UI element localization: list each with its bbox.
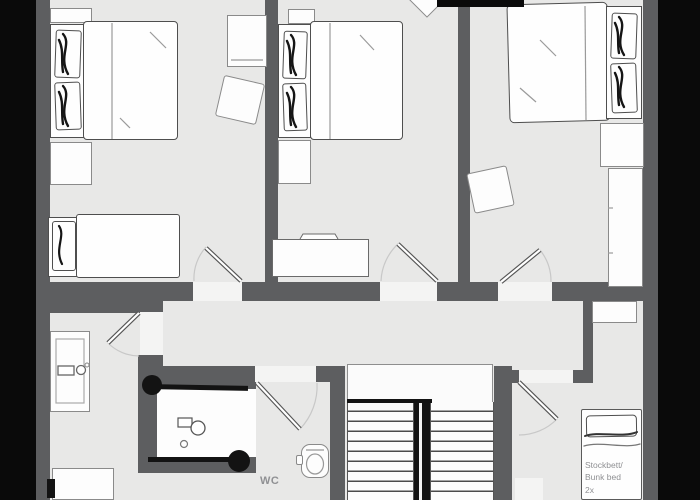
double-bed-3-mattress — [506, 2, 610, 124]
wardrobe — [608, 168, 643, 287]
shower-post — [142, 375, 162, 395]
border-right — [658, 0, 700, 500]
nightstand — [278, 140, 311, 184]
stair-divider — [414, 402, 430, 500]
shower-post — [228, 450, 250, 472]
wc-label: WC — [260, 475, 279, 487]
door-opening-room2 — [380, 282, 437, 301]
bath-fixture — [47, 479, 55, 498]
pillow — [52, 221, 76, 271]
nightstand — [50, 142, 92, 185]
door-opening-room3 — [498, 282, 552, 301]
pillow — [610, 63, 638, 114]
wall-stair-left — [330, 366, 345, 500]
wall-stair-right — [494, 366, 512, 500]
stair-handrail — [347, 399, 432, 403]
shower-frame-bottom — [148, 457, 234, 462]
bunk-bed-pillow — [586, 415, 637, 438]
door-opening-room1 — [193, 282, 242, 301]
bunk-bed-label: Stockbett/ Bunk bed 2x — [585, 459, 641, 496]
stool — [466, 165, 515, 214]
border-top-bar — [437, 0, 524, 7]
wall-room2-room3 — [458, 0, 470, 283]
stair-landing — [347, 364, 493, 403]
counter — [52, 468, 114, 500]
pillow — [282, 83, 308, 132]
stair-flight-left — [347, 402, 414, 500]
double-bed-1-mattress — [83, 21, 178, 140]
closet — [592, 301, 637, 323]
double-bed-2-mattress — [310, 21, 403, 140]
door-opening-wc — [255, 366, 316, 382]
pillow — [54, 30, 82, 79]
wall-bathroom-top — [48, 301, 140, 313]
bunk-bed-label-line1: Stockbett/ — [585, 459, 641, 471]
border-left — [0, 0, 36, 500]
shower-tray — [157, 389, 256, 457]
wall-corridor-end-stub — [138, 301, 163, 312]
vanity-sink — [50, 331, 90, 412]
floor-plan: WC Stockbett/ Bunk bed 2x — [0, 0, 700, 500]
nightstand — [600, 123, 644, 167]
pillow — [282, 31, 308, 80]
stair-flight-right — [430, 402, 494, 500]
door-opening-bunkroom — [519, 370, 573, 383]
dresser — [272, 239, 369, 277]
toilet-flush — [296, 455, 303, 465]
wardrobe — [227, 15, 267, 67]
pillow — [54, 82, 82, 131]
wall-outer-right — [643, 0, 658, 500]
toilet — [301, 444, 329, 478]
bunk-bed-label-line2: Bunk bed — [585, 471, 641, 483]
wall-bunkroom-top-left — [494, 370, 519, 383]
wall-corridor-top — [48, 282, 643, 301]
single-bed-mattress — [76, 214, 180, 278]
door-opening-bunkroom-bottom — [515, 478, 543, 500]
pillow — [610, 13, 638, 60]
bunk-bed-label-line3: 2x — [585, 484, 641, 496]
door-opening-bathroom — [140, 312, 163, 355]
